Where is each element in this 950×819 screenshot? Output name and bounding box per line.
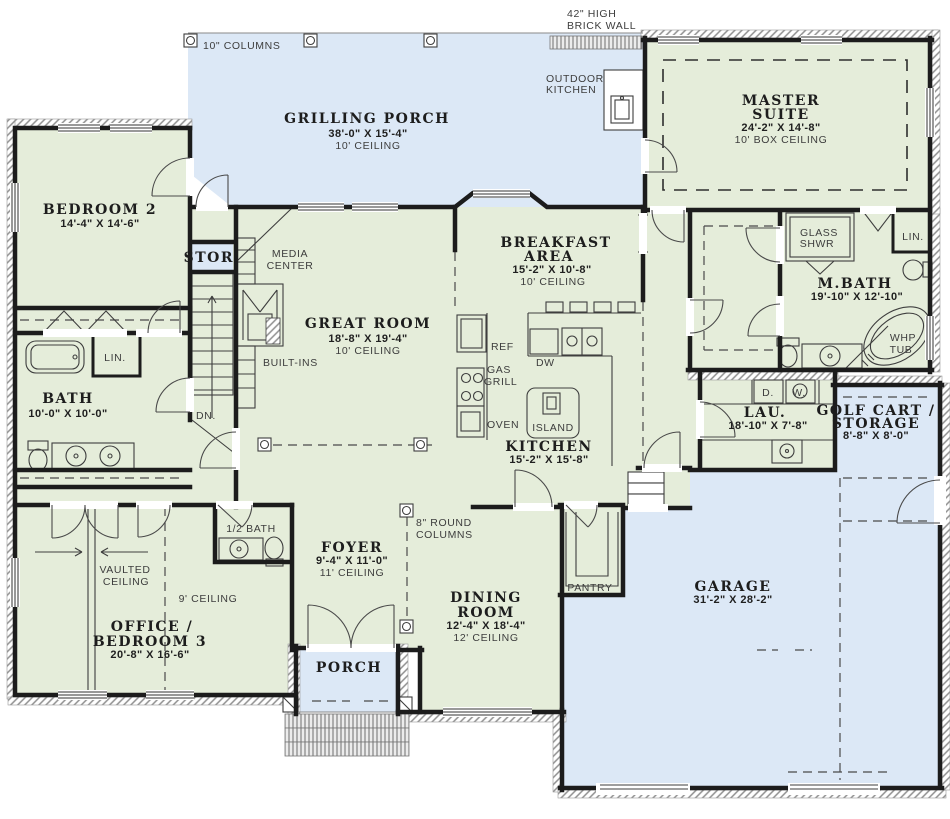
- island-label: ISLAND: [532, 422, 574, 434]
- stairs-dn-label: DN.: [196, 410, 216, 422]
- room-ceiling-great-room: 10' CEILING: [335, 345, 400, 357]
- floor-plan-canvas: GRILLING PORCH 38'-0" X 15'-4" 10' CEILI…: [0, 0, 950, 819]
- media-center-label-2: CENTER: [267, 260, 314, 272]
- room-ceiling-foyer: 11' CEILING: [320, 567, 384, 579]
- room-dims-kitchen: 15'-2" X 15'-8": [509, 454, 588, 466]
- room-dims-foyer: 9'-4" X 11'-0": [316, 555, 388, 567]
- linen-bath-label: LIN.: [104, 352, 126, 364]
- room-dims-breakfast: 15'-2" X 10'-8": [512, 264, 591, 276]
- brick-wall-label-2: BRICK WALL: [567, 20, 636, 32]
- room-label-bedroom2: BEDROOM 2: [43, 202, 157, 218]
- washer-label: W.: [792, 387, 805, 399]
- floor-fills: [15, 33, 940, 788]
- room-label-garage: GARAGE: [695, 579, 772, 595]
- room-dims-master: 24'-2" X 14'-8": [741, 122, 820, 134]
- vaulted-label-1: VAULTED: [99, 564, 150, 576]
- room-label-office-1: OFFICE /: [111, 619, 193, 635]
- whp-tub-label-1: WHP: [890, 332, 916, 344]
- room-label-great-room: GREAT ROOM: [305, 316, 431, 332]
- room-dims-golf-cart: 8'-8" X 8'-0": [843, 430, 909, 442]
- room-dims-dining: 12'-4" X 18'-4": [446, 620, 525, 632]
- room-dims-laundry: 18'-10" X 7'-8": [728, 420, 807, 432]
- room-label-bath: BATH: [42, 391, 94, 407]
- outdoor-kitchen-label-2: KITCHEN: [546, 84, 596, 96]
- room-dims-mbath: 19'-10" X 12'-10": [811, 291, 903, 303]
- room-label-mbath: M.BATH: [818, 276, 893, 292]
- room-dims-grilling-porch: 38'-0" X 15'-4": [328, 128, 407, 140]
- ref-label: REF: [491, 341, 514, 353]
- room-ceiling-dining: 12' CEILING: [453, 632, 518, 644]
- room-dims-great-room: 18'-8" X 19'-4": [328, 333, 407, 345]
- whp-tub-label-2: TUB: [890, 344, 913, 356]
- media-center-label-1: MEDIA: [272, 248, 308, 260]
- built-ins-label: BUILT-INS: [263, 357, 318, 369]
- room-label-dining-1: DINING: [450, 590, 522, 606]
- room-label-foyer: FOYER: [321, 540, 383, 556]
- dw-label: DW: [536, 357, 555, 369]
- room-ceiling-grilling-porch: 10' CEILING: [335, 140, 400, 152]
- grill-label: GRILL: [484, 376, 517, 388]
- room-dims-bath: 10'-0" X 10'-0": [28, 408, 107, 420]
- outdoor-kitchen-counter: [604, 70, 643, 130]
- brick-wall-label-1: 42" HIGH: [567, 8, 616, 20]
- room-label-master-2: SUITE: [752, 107, 809, 123]
- room-label-laundry: LAU.: [744, 405, 787, 421]
- room-label-half-bath: 1/2 BATH: [226, 523, 276, 535]
- oven-label: OVEN: [487, 419, 519, 431]
- room-label-kitchen: KITCHEN: [505, 439, 592, 455]
- linen-mbath-label: LIN.: [902, 231, 924, 243]
- room-label-porch: PORCH: [316, 660, 382, 676]
- room-label-grilling-porch: GRILLING PORCH: [284, 111, 450, 127]
- pantry-label: PANTRY: [567, 582, 612, 594]
- vaulted-label-2: CEILING: [103, 576, 149, 588]
- brick-wall-band: [550, 36, 642, 49]
- floor-plan-page: GRILLING PORCH 38'-0" X 15'-4" 10' CEILI…: [0, 0, 950, 819]
- room-label-office-2: BEDROOM 3: [93, 634, 207, 650]
- gas-label: GAS: [487, 364, 511, 376]
- room-dims-bedroom2: 14'-4" X 14'-6": [60, 218, 139, 230]
- dryer-label: D.: [762, 387, 774, 399]
- room-ceiling-master: 10' BOX CEILING: [735, 134, 828, 146]
- room-label-dining-2: ROOM: [457, 605, 515, 621]
- room-ceiling-breakfast: 10' CEILING: [520, 276, 585, 288]
- round-columns-label-2: COLUMNS: [416, 529, 473, 541]
- columns-10-label: 10" COLUMNS: [203, 40, 280, 52]
- room-label-breakfast-2: AREA: [523, 249, 574, 265]
- round-columns-label-1: 8" ROUND: [416, 517, 472, 529]
- room-label-stor: STOR.: [184, 250, 241, 266]
- garage-steps: [628, 472, 664, 505]
- ceiling-9-label: 9' CEILING: [179, 593, 238, 605]
- room-dims-office: 20'-8" X 16'-6": [110, 649, 189, 661]
- glass-shwr-label-2: SHWR: [800, 238, 834, 250]
- room-dims-garage: 31'-2" X 28'-2": [693, 594, 772, 606]
